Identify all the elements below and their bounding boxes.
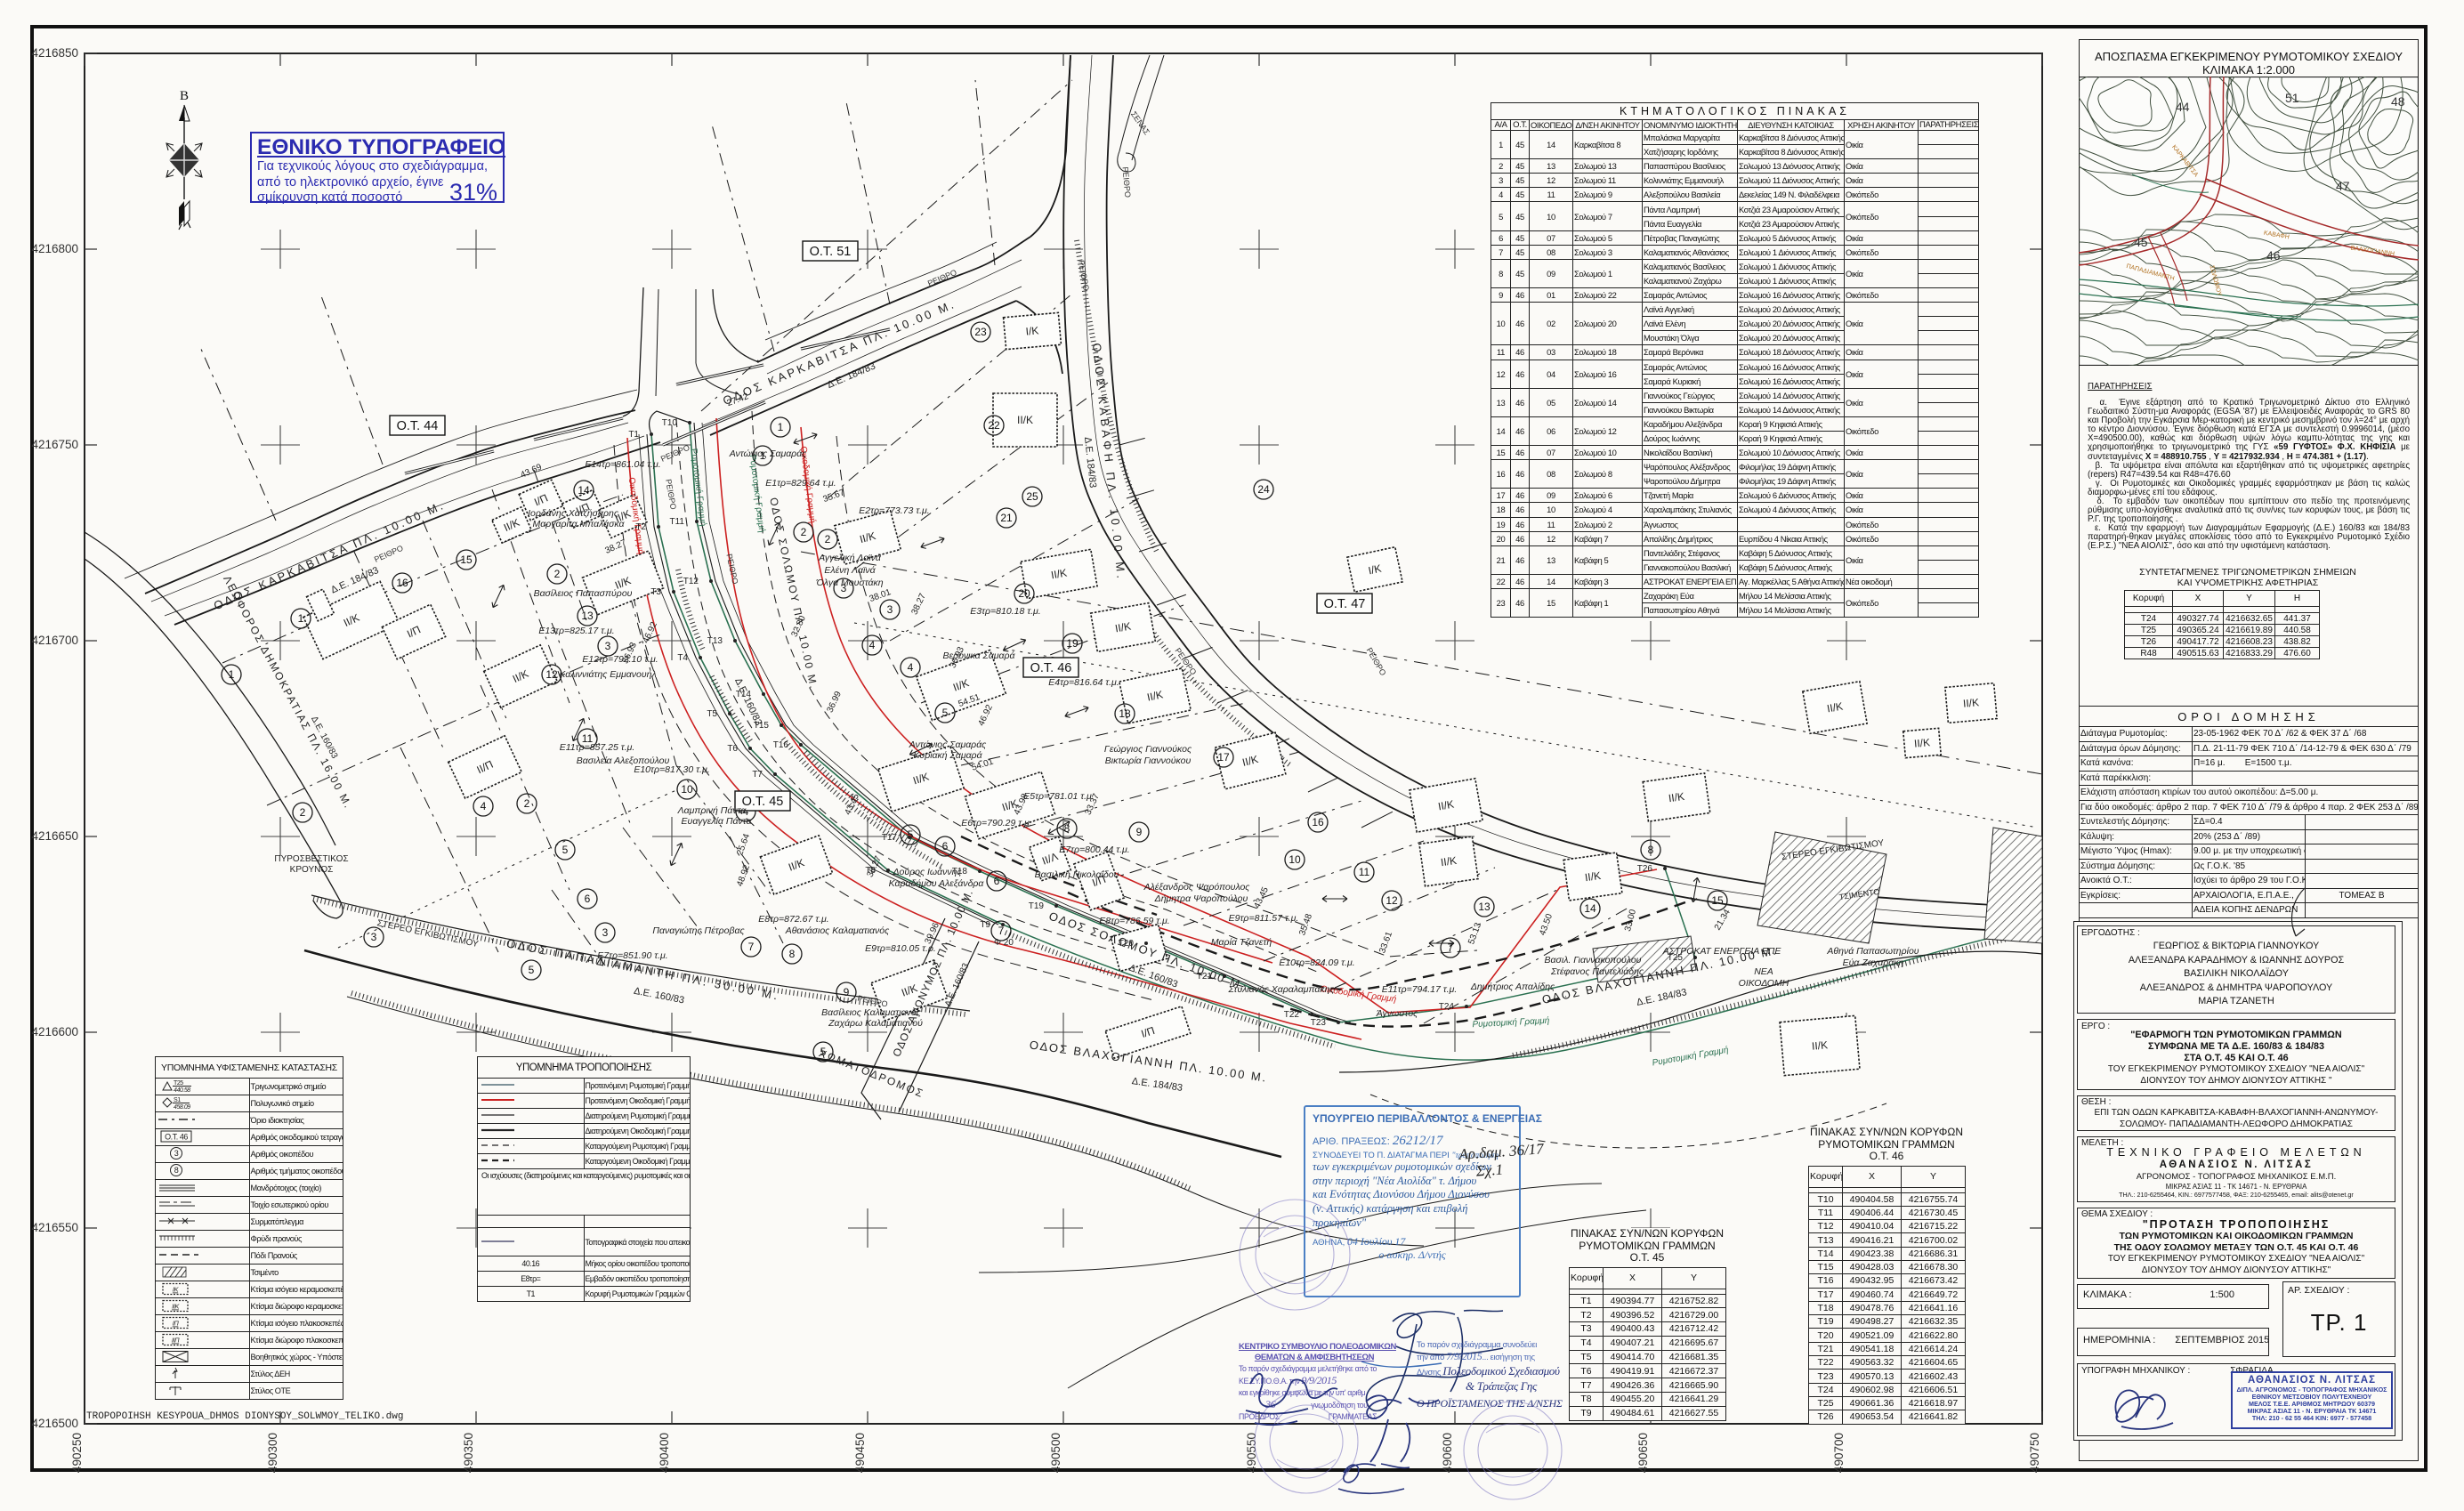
svg-text:4216650: 4216650 <box>31 829 78 843</box>
svg-text:T23: T23 <box>1311 1018 1327 1028</box>
svg-text:ΠΥΡΟΣΒΕΣΤΙΚΟΣ: ΠΥΡΟΣΒΕΣΤΙΚΟΣ <box>274 854 348 864</box>
svg-text:47: 47 <box>2336 179 2350 193</box>
svg-text:Ε7τρ=800.44 τ.μ.: Ε7τρ=800.44 τ.μ. <box>1059 844 1129 855</box>
svg-text:T17: T17 <box>882 833 898 843</box>
svg-text:Ε1τρ=829.64 τ.μ.: Ε1τρ=829.64 τ.μ. <box>765 478 836 489</box>
svg-text:38.27: 38.27 <box>603 537 628 555</box>
svg-text:ΡΕΙΘΡΟ: ΡΕΙΘΡΟ <box>1365 646 1388 677</box>
svg-text:45: 45 <box>2134 235 2148 249</box>
svg-text:25: 25 <box>1026 490 1038 503</box>
svg-text:48: 48 <box>2391 94 2405 109</box>
svg-text:Ευαγγελία Πάντα: Ευαγγελία Πάντα <box>682 816 753 827</box>
svg-text:43.50: 43.50 <box>1538 912 1555 937</box>
svg-text:16: 16 <box>1312 816 1324 828</box>
svg-text:ΙΠ: ΙΠ <box>173 1320 180 1328</box>
svg-text:1: 1 <box>778 421 784 433</box>
svg-text:4216600: 4216600 <box>31 1025 78 1038</box>
svg-text:Ο.Τ. 46: Ο.Τ. 46 <box>1030 661 1072 675</box>
svg-text:ΧΩΜΑΤΟΔΡΟΜΟΣ: ΧΩΜΑΤΟΔΡΟΜΟΣ <box>817 1046 925 1100</box>
svg-text:8: 8 <box>789 948 796 960</box>
svg-text:Δ.Ε. 160/83: Δ.Ε. 160/83 <box>943 961 971 1008</box>
svg-text:S1: S1 <box>174 1097 181 1103</box>
svg-text:Γεώργιος Γιαννούκος: Γεώργιος Γιαννούκος <box>1104 744 1192 755</box>
svg-text:43.69: 43.69 <box>519 462 544 480</box>
svg-text:Βικτωρία Γιαννούκου: Βικτωρία Γιαννούκου <box>1105 755 1192 766</box>
svg-text:Ε9τρ=811.57 τ.μ.: Ε9τρ=811.57 τ.μ. <box>1229 913 1299 924</box>
svg-text:ΡΕΙΘΡΟ: ΡΕΙΘΡΟ <box>664 479 678 511</box>
svg-text:15: 15 <box>1711 894 1724 907</box>
svg-text:3: 3 <box>887 603 893 616</box>
svg-text:T26: T26 <box>1637 864 1653 874</box>
svg-text:T3: T3 <box>650 587 661 597</box>
svg-text:458.09: 458.09 <box>174 1104 190 1110</box>
svg-text:4216800: 4216800 <box>31 242 78 255</box>
svg-text:Στέφανος Παντελιάδης: Στέφανος Παντελιάδης <box>1550 966 1644 977</box>
svg-text:18: 18 <box>1119 707 1131 720</box>
svg-text:1: 1 <box>229 668 235 681</box>
svg-text:TROPOPOIHSH KESYPOUA_DHMOS DIO: TROPOPOIHSH KESYPOUA_DHMOS DIONYSOY_SOLW… <box>86 1411 403 1422</box>
svg-text:Δ.Ε. 160/83: Δ.Ε. 160/83 <box>633 986 685 1006</box>
svg-text:51: 51 <box>2285 91 2299 105</box>
svg-text:2: 2 <box>524 797 530 810</box>
svg-text:46: 46 <box>2266 248 2281 263</box>
svg-text:Ζαχάρω Καλαματιανού: Ζαχάρω Καλαματιανού <box>828 1018 923 1029</box>
svg-text:38.01: 38.01 <box>868 587 893 604</box>
svg-text:490500: 490500 <box>1049 1433 1062 1473</box>
svg-text:3: 3 <box>605 640 611 652</box>
svg-text:Δ.Ε. 184/83: Δ.Ε. 184/83 <box>1082 436 1098 488</box>
svg-text:T15: T15 <box>754 721 770 731</box>
svg-text:ΙΙ/Κ: ΙΙ/Κ <box>1811 1038 1828 1053</box>
svg-text:T7: T7 <box>752 770 763 780</box>
svg-text:11: 11 <box>1359 866 1370 878</box>
svg-text:Ο.Τ. 45: Ο.Τ. 45 <box>742 795 784 809</box>
svg-text:35.67: 35.67 <box>822 488 847 505</box>
svg-text:Δημήτριος Απαλίδης: Δημήτριος Απαλίδης <box>1470 982 1555 992</box>
svg-text:Ο.Τ. 47: Ο.Τ. 47 <box>1324 597 1366 611</box>
svg-text:Αλέξανδρος Ψαρόπουλος: Αλέξανδρος Ψαρόπουλος <box>1143 882 1251 893</box>
svg-text:ΚΡΟΥΝΟΣ: ΚΡΟΥΝΟΣ <box>290 865 334 875</box>
svg-text:ΙΙ/Κ: ΙΙ/Κ <box>1913 736 1930 750</box>
svg-text:Ι/Κ: Ι/Κ <box>1025 324 1039 337</box>
svg-text:Ε8τρ=872.67 τ.μ.: Ε8τρ=872.67 τ.μ. <box>758 914 828 925</box>
svg-text:2: 2 <box>300 806 306 819</box>
svg-text:38.27: 38.27 <box>909 592 928 617</box>
svg-text:24: 24 <box>1257 483 1270 496</box>
svg-text:ΝΕΑ: ΝΕΑ <box>1754 966 1773 977</box>
svg-text:Ε10τρ=817.30 τ.μ.: Ε10τρ=817.30 τ.μ. <box>634 764 709 775</box>
svg-text:9: 9 <box>1136 826 1143 838</box>
svg-text:Ε6τρ=790.29 τ.μ.: Ε6τρ=790.29 τ.μ. <box>961 818 1031 828</box>
svg-text:Ε4τρ=816.64 τ.μ.: Ε4τρ=816.64 τ.μ. <box>1048 677 1119 688</box>
svg-text:T6: T6 <box>727 744 738 754</box>
svg-text:5: 5 <box>942 707 949 719</box>
svg-text:Ε14τρ=861.04 τ.μ.: Ε14τρ=861.04 τ.μ. <box>585 459 660 470</box>
svg-text:Ε5τρ=781.01 τ.μ.: Ε5τρ=781.01 τ.μ. <box>1023 791 1094 802</box>
svg-text:490400: 490400 <box>658 1433 671 1473</box>
svg-text:Παναγιώτης Πέτροβας: Παναγιώτης Πέτροβας <box>652 925 745 936</box>
svg-text:T25: T25 <box>1668 953 1684 963</box>
svg-text:33.00: 33.00 <box>1623 908 1638 932</box>
svg-text:490750: 490750 <box>2028 1433 2041 1473</box>
svg-text:33.61: 33.61 <box>1377 930 1394 955</box>
svg-text:Ε12τρ=792.10 τ.μ.: Ε12τρ=792.10 τ.μ. <box>582 654 658 665</box>
svg-text:7: 7 <box>998 925 1005 937</box>
svg-text:14: 14 <box>1584 902 1596 915</box>
svg-text:Ε2τρ=773.73 τ.μ.: Ε2τρ=773.73 τ.μ. <box>859 505 929 516</box>
svg-text:21.34: 21.34 <box>1713 908 1733 933</box>
svg-text:440.58: 440.58 <box>174 1087 190 1093</box>
svg-text:Αθανάσιος Καλαματιανός: Αθανάσιος Καλαματιανός <box>785 925 890 936</box>
svg-text:5: 5 <box>908 828 914 841</box>
svg-text:16: 16 <box>396 577 408 589</box>
svg-text:3: 3 <box>371 931 377 943</box>
svg-text:ΙΙΚ: ΙΙΚ <box>172 1303 180 1311</box>
svg-text:T18: T18 <box>952 867 968 877</box>
svg-text:2: 2 <box>825 533 831 545</box>
svg-text:Ρυμοτομική Γραμμή: Ρυμοτομική Γραμμή <box>747 454 768 533</box>
svg-text:ΙΙ/Κ: ΙΙ/Κ <box>1668 790 1685 804</box>
svg-text:2: 2 <box>801 526 807 538</box>
svg-text:Ε9τρ=810.05 τ.ρ.: Ε9τρ=810.05 τ.ρ. <box>865 943 936 954</box>
svg-text:4216550: 4216550 <box>31 1221 78 1234</box>
svg-text:T20: T20 <box>1119 939 1135 949</box>
svg-text:12: 12 <box>545 668 558 681</box>
svg-text:490700: 490700 <box>1832 1433 1846 1473</box>
svg-text:T10: T10 <box>662 418 678 428</box>
svg-text:Βασιλική Νικολαΐδου: Βασιλική Νικολαΐδου <box>1035 869 1119 880</box>
svg-text:Ε13τρ=825.17 τ.μ.: Ε13τρ=825.17 τ.μ. <box>538 626 614 636</box>
svg-text:Αντώνιος Σαμαράς: Αντώνιος Σαμαράς <box>909 739 987 750</box>
svg-text:4216750: 4216750 <box>31 438 78 451</box>
svg-text:4216850: 4216850 <box>31 46 78 60</box>
svg-text:Ο.Τ. 51: Ο.Τ. 51 <box>810 245 852 259</box>
svg-text:17: 17 <box>1217 751 1230 764</box>
svg-text:490300: 490300 <box>266 1433 279 1473</box>
svg-text:15: 15 <box>460 553 473 566</box>
svg-text:14: 14 <box>578 484 590 497</box>
svg-text:T5: T5 <box>707 709 717 719</box>
svg-text:Ε7τρ=851.90 τ.μ.: Ε7τρ=851.90 τ.μ. <box>597 950 667 961</box>
svg-text:T8: T8 <box>865 866 876 876</box>
svg-text:53.13: 53.13 <box>1466 921 1483 946</box>
svg-text:Ο.Τ. 46: Ο.Τ. 46 <box>165 1133 188 1142</box>
svg-text:13: 13 <box>1478 901 1491 913</box>
svg-text:39.96: 39.96 <box>923 921 941 946</box>
svg-text:8: 8 <box>174 1166 179 1175</box>
svg-text:T19: T19 <box>1029 901 1045 911</box>
svg-text:ΡΕΙΘΡΟ: ΡΕΙΘΡΟ <box>724 553 739 585</box>
svg-text:2: 2 <box>554 568 561 580</box>
svg-text:43.45: 43.45 <box>1252 885 1271 910</box>
svg-text:Εύα Ζαχαράκη: Εύα Ζαχαράκη <box>1843 958 1904 968</box>
svg-text:36.99: 36.99 <box>825 690 844 715</box>
svg-text:Ο.Τ. 44: Ο.Τ. 44 <box>397 419 439 433</box>
svg-text:Ε8τρ=786.59 τ.μ.: Ε8τρ=786.59 τ.μ. <box>1099 916 1169 926</box>
svg-text:ΡΕΙΘΡΟ: ΡΕΙΘΡΟ <box>926 268 958 288</box>
svg-text:Ε3τρ=810.18 τ.μ.: Ε3τρ=810.18 τ.μ. <box>970 606 1040 617</box>
svg-text:Ι/Κ: Ι/Κ <box>1367 562 1382 578</box>
svg-text:ΟΔΟΣ ΚΑΡΚΑΒΙΤΣΑ ΠΛ. 10.00 Μ.: ΟΔΟΣ ΚΑΡΚΑΒΙΤΣΑ ΠΛ. 10.00 Μ. <box>212 497 448 612</box>
svg-text:ΙΙ/Κ: ΙΙ/Κ <box>1440 854 1458 869</box>
svg-text:ΙΚ: ΙΚ <box>173 1286 180 1294</box>
svg-text:9: 9 <box>844 986 850 998</box>
svg-text:Ε11τρ=857.25 τ.μ.: Ε11τρ=857.25 τ.μ. <box>560 742 635 753</box>
svg-text:Τ25: Τ25 <box>174 1080 183 1087</box>
svg-text:T14: T14 <box>736 690 752 699</box>
svg-text:23: 23 <box>974 326 987 338</box>
svg-text:19: 19 <box>1066 637 1079 650</box>
svg-text:Ρυμοτομική Γραμμή: Ρυμοτομική Γραμμή <box>689 448 709 527</box>
svg-text:ΟΙΚΟΔΟΜΗ: ΟΙΚΟΔΟΜΗ <box>1739 978 1789 989</box>
svg-text:Βασίλειος Παπασπύρου: Βασίλειος Παπασπύρου <box>534 588 633 599</box>
svg-text:Καλιννιάτης Εμμανουήλ: Καλιννιάτης Εμμανουήλ <box>559 669 656 680</box>
svg-text:Δ.Ε. 184/83: Δ.Ε. 184/83 <box>826 360 877 391</box>
svg-text:5: 5 <box>529 964 535 976</box>
svg-text:6: 6 <box>942 840 949 852</box>
svg-text:T1: T1 <box>628 430 639 440</box>
svg-text:4216700: 4216700 <box>31 634 78 647</box>
svg-text:490250: 490250 <box>70 1433 84 1473</box>
svg-text:ΙΙ/Κ: ΙΙ/Κ <box>1962 696 1979 710</box>
svg-text:ΡΕΙΘΡΟ: ΡΕΙΘΡΟ <box>1121 166 1133 198</box>
svg-text:10: 10 <box>681 783 693 796</box>
svg-text:Φ 20: Φ 20 <box>994 938 1014 948</box>
svg-text:4: 4 <box>908 661 914 674</box>
svg-text:Αντώνιος Σαμαράς: Αντώνιος Σαμαράς <box>729 448 807 459</box>
svg-text:Μαργαρίτα Μπαλάσκα: Μαργαρίτα Μπαλάσκα <box>532 519 625 529</box>
svg-text:Καραδήμου Αλεξάνδρα: Καραδήμου Αλεξάνδρα <box>889 878 985 889</box>
svg-text:Ελένη Λαϊνά: Ελένη Λαϊνά <box>824 565 876 576</box>
svg-text:Δ.Ε. 184/83: Δ.Ε. 184/83 <box>1131 1076 1184 1094</box>
svg-text:ΟΔΟΣ ΚΑΡΚΑΒΙΤΣΑ ΠΛ. 10.00 Μ.: ΟΔΟΣ ΚΑΡΚΑΒΙΤΣΑ ΠΛ. 10.00 Μ. <box>721 297 957 408</box>
svg-text:ΙΙ/Κ: ΙΙ/Κ <box>1584 869 1602 884</box>
svg-text:T21: T21 <box>1197 972 1213 982</box>
svg-text:Όλγα Μουστάκη: Όλγα Μουστάκη <box>815 578 883 588</box>
svg-text:ΙΙΠ: ΙΙΠ <box>172 1337 180 1345</box>
svg-text:Δ.Ε. 184/83: Δ.Ε. 184/83 <box>1636 987 1688 1008</box>
svg-text:Αθηνά Παπασωτηρίου: Αθηνά Παπασωτηρίου <box>1826 946 1919 957</box>
svg-text:T4: T4 <box>677 653 688 663</box>
svg-text:T22: T22 <box>1284 1010 1300 1020</box>
svg-text:ΡΕΙΘΡΟ: ΡΕΙΘΡΟ <box>1077 260 1091 292</box>
svg-text:48.92: 48.92 <box>735 863 752 888</box>
svg-text:5: 5 <box>562 844 569 856</box>
svg-text:T9: T9 <box>980 920 990 930</box>
svg-text:490450: 490450 <box>853 1433 867 1473</box>
svg-text:Άγνωστος: Άγνωστος <box>1376 1008 1418 1019</box>
svg-text:4: 4 <box>481 800 487 812</box>
svg-text:T16: T16 <box>773 740 789 750</box>
svg-text:3: 3 <box>174 1149 179 1158</box>
svg-text:ΣΤΕΡΕΟ ΕΓΚΙΒΩΤΙΣΜΟΥ: ΣΤΕΡΕΟ ΕΓΚΙΒΩΤΙΣΜΟΥ <box>376 918 480 949</box>
svg-text:490350: 490350 <box>462 1433 475 1473</box>
svg-text:13: 13 <box>581 610 594 622</box>
svg-text:4216500: 4216500 <box>31 1417 78 1430</box>
svg-text:3: 3 <box>602 926 609 939</box>
svg-text:Λαμπρινή Πάντα: Λαμπρινή Πάντα <box>677 805 747 816</box>
svg-text:T12: T12 <box>683 577 699 586</box>
svg-text:T11: T11 <box>670 517 685 527</box>
svg-text:Στυλιανός Χαραλαμπάκης: Στυλιανός Χαραλαμπάκης <box>1227 984 1335 995</box>
svg-text:Ε10τρ=824.09 τ.μ.: Ε10τρ=824.09 τ.μ. <box>1279 958 1354 968</box>
svg-text:Αγγελική Λαϊνά: Αγγελική Λαϊνά <box>818 553 882 563</box>
svg-text:35.48: 35.48 <box>1297 912 1314 937</box>
svg-text:Δήμητρα Ψαροπούλου: Δήμητρα Ψαροπούλου <box>1154 893 1248 904</box>
svg-text:ΙΙ/Κ: ΙΙ/Κ <box>1017 414 1033 426</box>
svg-text:10: 10 <box>1289 853 1301 866</box>
svg-text:T2: T2 <box>635 522 646 532</box>
svg-text:7: 7 <box>748 941 755 953</box>
svg-text:25.64: 25.64 <box>735 832 752 857</box>
svg-text:6: 6 <box>994 875 1000 887</box>
svg-text:Ε11τρ=794.17 τ.μ.: Ε11τρ=794.17 τ.μ. <box>1382 984 1458 995</box>
svg-text:8: 8 <box>1648 844 1654 856</box>
svg-text:Ρυμοτομική Γραμμή: Ρυμοτομική Γραμμή <box>1652 1045 1730 1069</box>
svg-text:44: 44 <box>2176 100 2190 114</box>
svg-text:Κυριακή Σαμαρά: Κυριακή Σαμαρά <box>913 750 982 761</box>
svg-text:T13: T13 <box>707 636 723 646</box>
svg-text:46.92: 46.92 <box>976 703 995 728</box>
svg-text:Βασιλ. Γιαννακοπούλου: Βασιλ. Γιαννακοπούλου <box>1545 955 1642 966</box>
svg-text:T24: T24 <box>1439 1002 1455 1012</box>
svg-text:Ιορδάνης Χατζήσαρης: Ιορδάνης Χατζήσαρης <box>528 508 619 519</box>
svg-text:ΣΕΝΑΣ: ΣΕΝΑΣ <box>1129 109 1151 136</box>
svg-text:12: 12 <box>1385 894 1398 907</box>
svg-text:1: 1 <box>298 612 304 625</box>
svg-text:4: 4 <box>869 639 876 651</box>
svg-text:20: 20 <box>1018 587 1030 600</box>
svg-text:22: 22 <box>988 419 1000 432</box>
svg-text:21: 21 <box>1000 512 1013 524</box>
svg-text:6: 6 <box>585 893 591 905</box>
svg-text:Βασίλειος Καλαματιανός: Βασίλειος Καλαματιανός <box>821 1007 922 1018</box>
svg-text:Μαρία Τζανετή: Μαρία Τζανετή <box>1211 937 1272 948</box>
svg-text:Β: Β <box>180 89 189 103</box>
svg-text:ΡΕΙΘΡΟ: ΡΕΙΘΡΟ <box>373 544 405 564</box>
